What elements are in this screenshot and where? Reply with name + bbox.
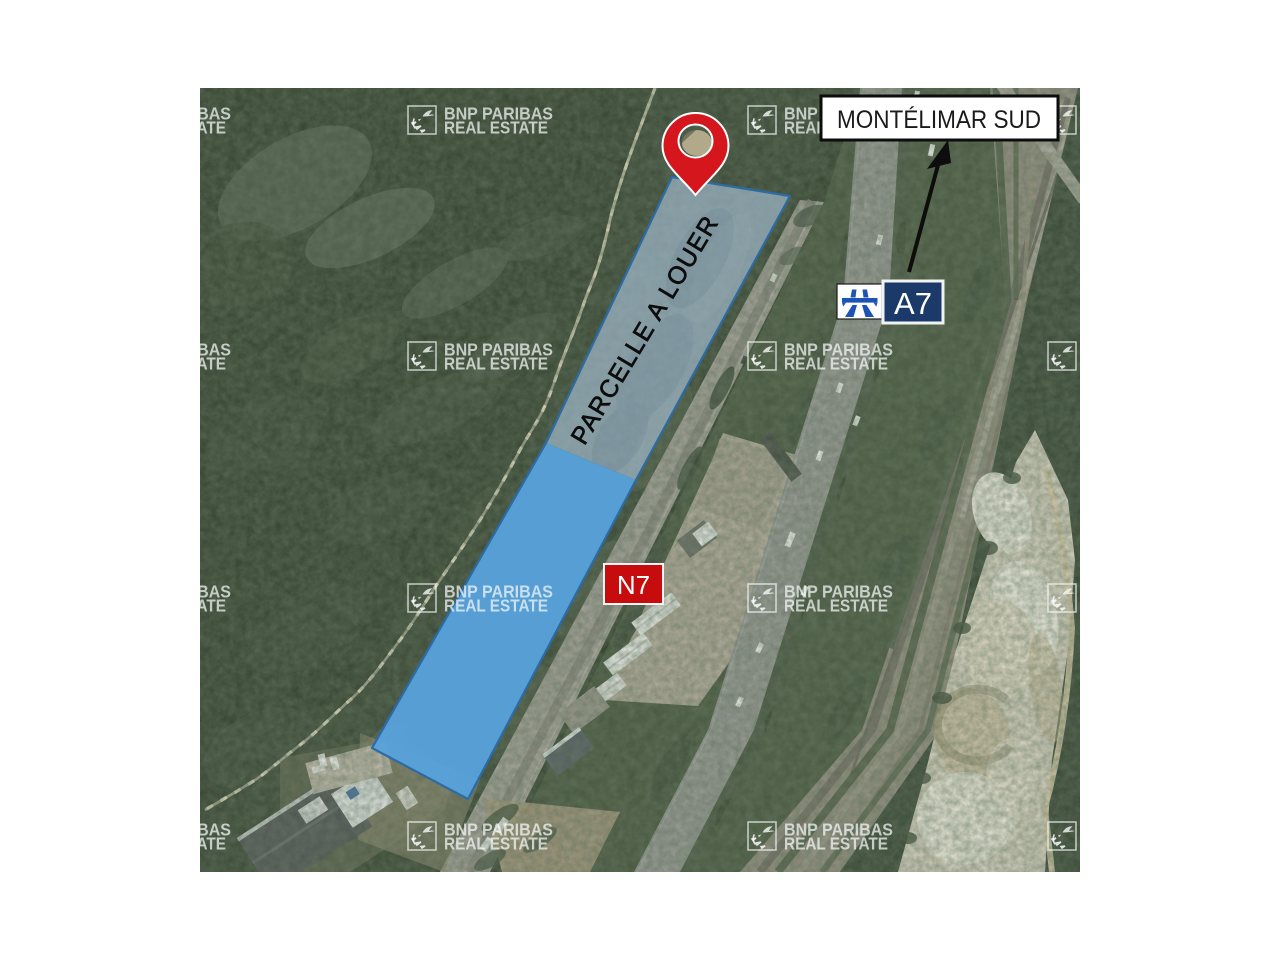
svg-text:N7: N7 <box>617 570 650 600</box>
svg-text:MONTÉLIMAR SUD: MONTÉLIMAR SUD <box>837 105 1041 134</box>
svg-text:A7: A7 <box>894 286 932 321</box>
